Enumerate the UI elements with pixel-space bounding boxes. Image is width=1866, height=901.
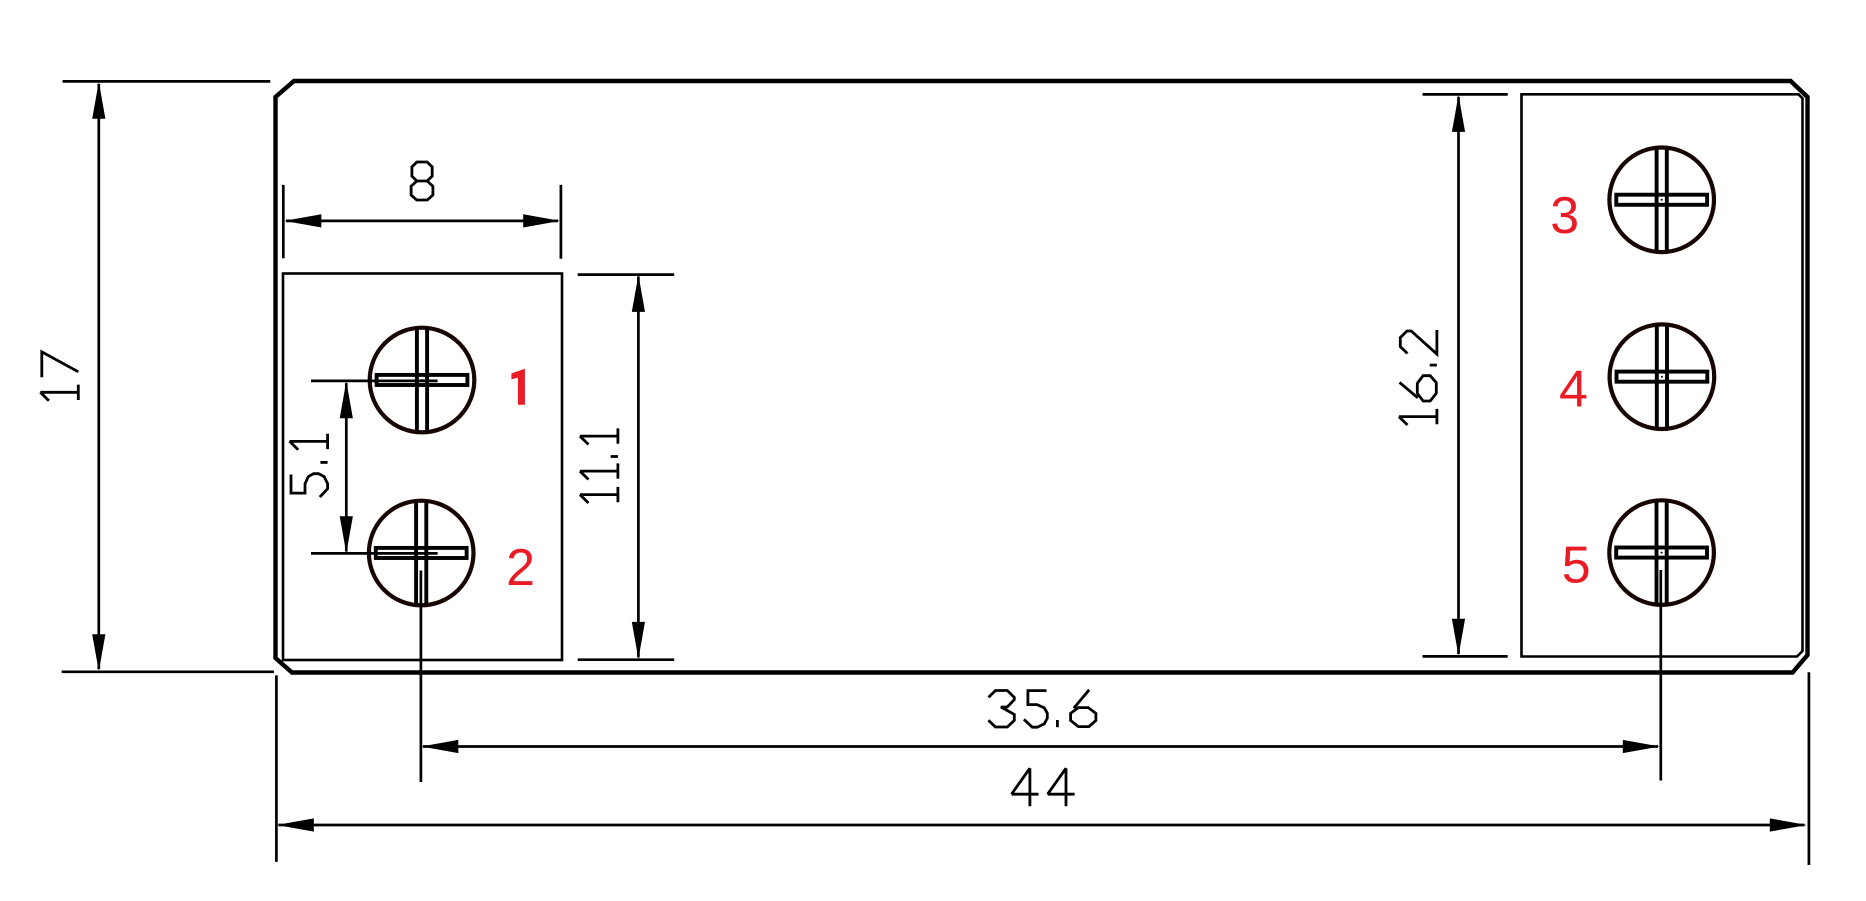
svg-text:2: 2 (506, 539, 535, 597)
svg-text:4: 4 (1559, 361, 1588, 419)
svg-text:5: 5 (1562, 537, 1591, 595)
svg-text:3: 3 (1550, 187, 1579, 245)
